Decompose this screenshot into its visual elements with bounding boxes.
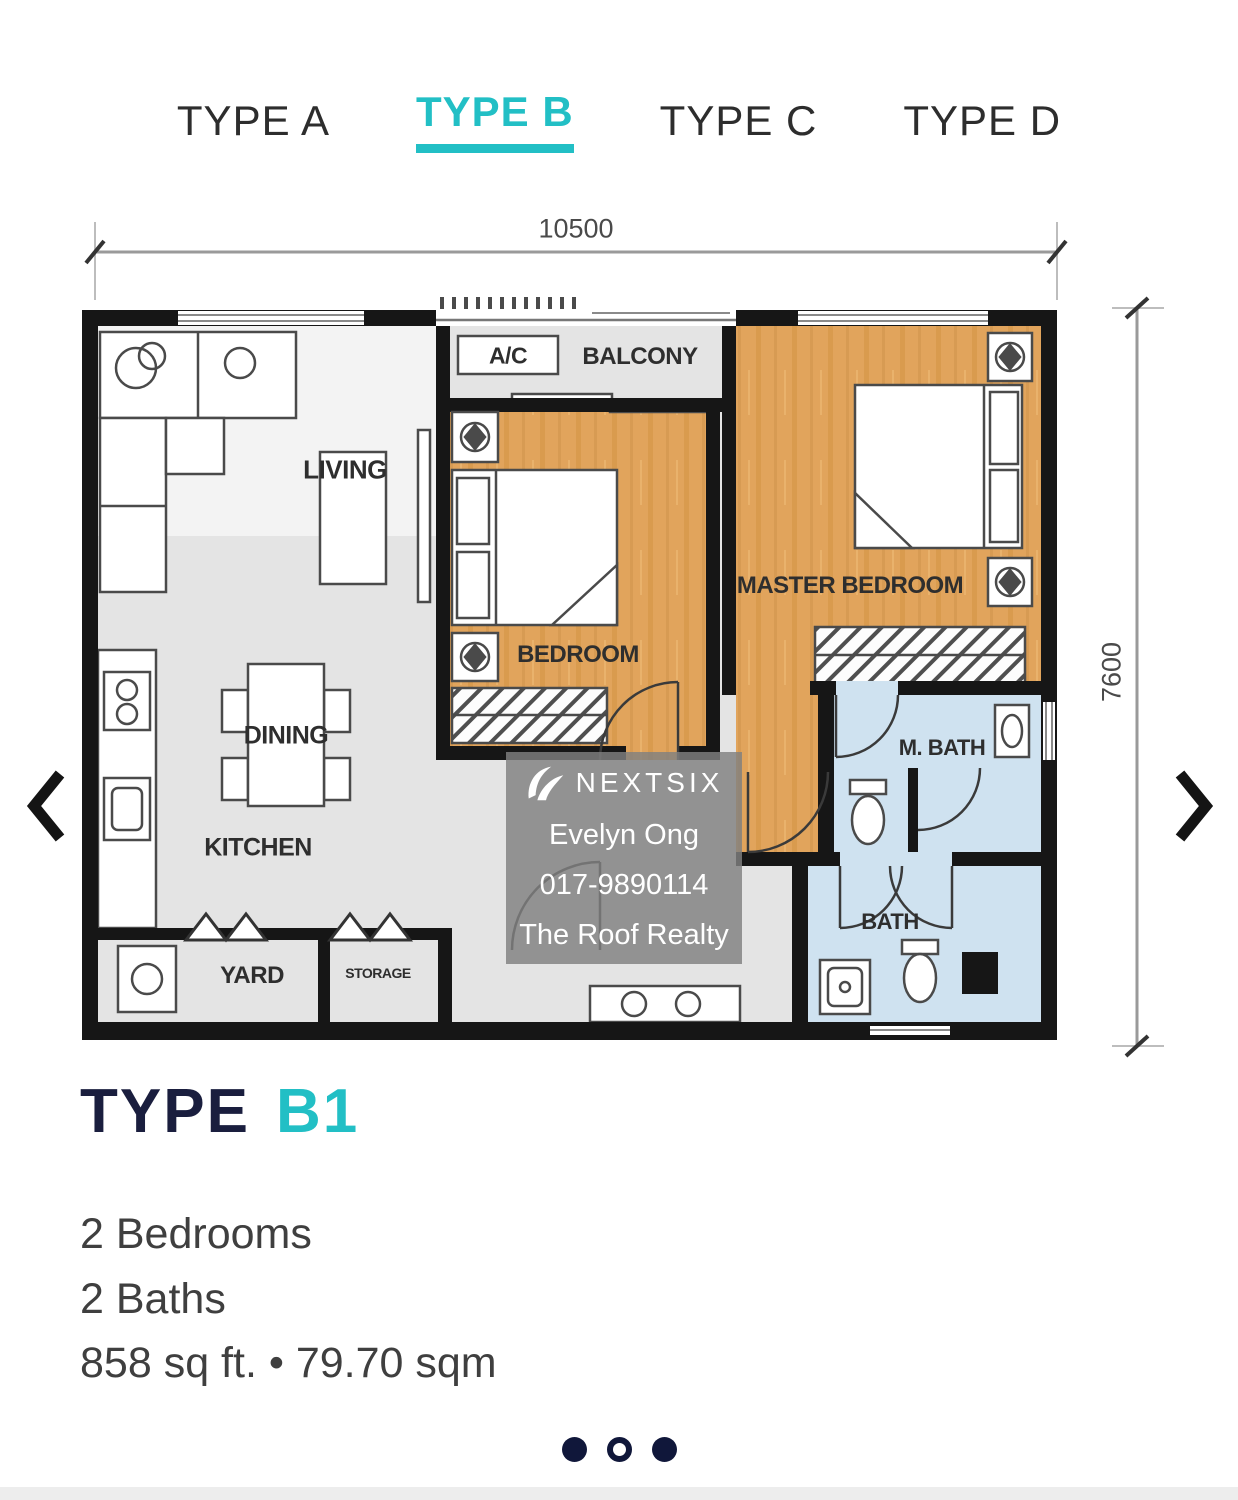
chevron-right-icon: [1164, 764, 1224, 848]
room-label-bedroom: BEDROOM: [517, 641, 639, 669]
tab-type-d[interactable]: TYPE D: [903, 88, 1061, 153]
unit-specs: 2 Bedrooms 2 Baths 858 sq ft. • 79.70 sq…: [80, 1202, 497, 1396]
room-label-bath: BATH: [861, 909, 918, 935]
tab-type-b[interactable]: TYPE B: [416, 88, 574, 153]
dimension-height-label: 7600: [1097, 642, 1128, 702]
watermark-phone: 017-9890114: [540, 869, 709, 902]
tab-type-a[interactable]: TYPE A: [177, 88, 330, 153]
carousel-dot-3[interactable]: [652, 1437, 677, 1462]
room-label-kitchen: KITCHEN: [204, 834, 312, 863]
room-label-dining: DINING: [244, 722, 329, 751]
room-label-ac: A/C: [489, 343, 527, 370]
next-section-edge: [0, 1487, 1238, 1500]
dimension-width-label: 10500: [538, 214, 613, 245]
next-button[interactable]: [1164, 764, 1224, 848]
prev-button[interactable]: [16, 764, 76, 848]
carousel-dot-2[interactable]: [607, 1437, 632, 1462]
spec-baths: 2 Baths: [80, 1267, 497, 1332]
spec-area: 858 sq ft. • 79.70 sqm: [80, 1331, 497, 1396]
floorplan-carousel-page: TYPE A TYPE B TYPE C TYPE D 10500 7600 L…: [0, 0, 1238, 1500]
watermark-brand: NEXTSIX: [525, 764, 724, 802]
room-label-yard: YARD: [220, 962, 284, 990]
carousel-dots: [0, 1437, 1238, 1462]
watermark-brand-name: NEXTSIX: [576, 767, 724, 799]
floorplan-type-tabs: TYPE A TYPE B TYPE C TYPE D: [0, 88, 1238, 153]
unit-title: TYPEB1: [80, 1076, 359, 1147]
watermark-agency: The Roof Realty: [519, 919, 729, 952]
room-label-storage: STORAGE: [345, 965, 410, 981]
carousel-dot-1[interactable]: [562, 1437, 587, 1462]
spec-bedrooms: 2 Bedrooms: [80, 1202, 497, 1267]
agent-watermark: NEXTSIX Evelyn Ong 017-9890114 The Roof …: [506, 752, 742, 964]
unit-title-main: TYPE: [80, 1077, 250, 1146]
chevron-left-icon: [16, 764, 76, 848]
watermark-agent-name: Evelyn Ong: [549, 819, 699, 852]
room-label-master-bedroom: MASTER BEDROOM: [737, 572, 963, 600]
room-label-m-bath: M. BATH: [899, 735, 986, 761]
room-label-living: LIVING: [303, 455, 387, 486]
tab-type-c[interactable]: TYPE C: [660, 88, 818, 153]
room-label-balcony: BALCONY: [582, 343, 697, 371]
unit-title-accent: B1: [276, 1077, 359, 1146]
nextsix-logo-icon: [525, 764, 567, 802]
